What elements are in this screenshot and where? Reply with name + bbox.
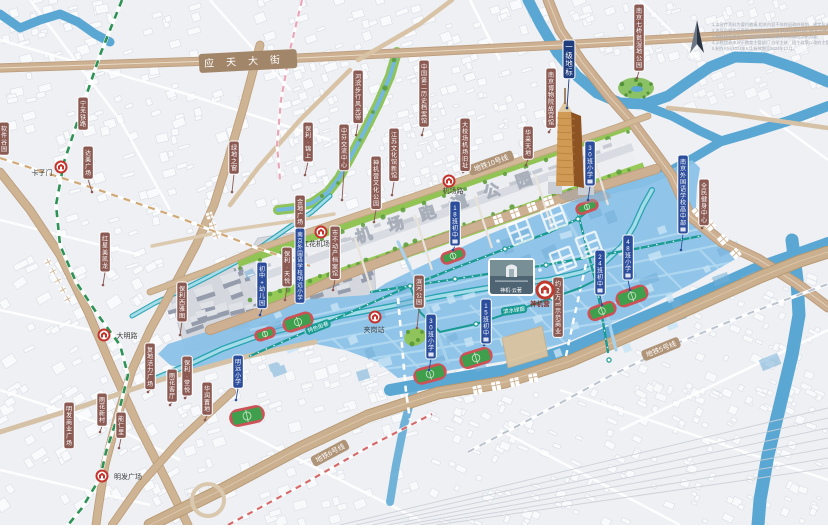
svg-text:保: 保	[305, 125, 311, 133]
svg-text:力: 力	[147, 366, 153, 374]
svg-text:馆: 馆	[391, 172, 397, 180]
svg-text:约: 约	[555, 280, 561, 288]
svg-text:地: 地	[231, 151, 237, 159]
svg-text:全: 全	[701, 182, 707, 190]
svg-text:中: 中	[483, 329, 489, 337]
svg-text:学: 学	[587, 171, 593, 179]
svg-text:3.地铁信息来源于南京地铁官网,开通时间以政府公示为准;: 3.地铁信息来源于南京地铁官网,开通时间以政府公示为准;	[712, 33, 818, 40]
svg-text:新: 新	[391, 165, 397, 173]
svg-text:市: 市	[332, 229, 338, 237]
svg-text:外: 外	[297, 243, 303, 251]
svg-text:4.学校信息来源于教育主管部门,办学主体、招生政策以政府主管: 4.学校信息来源于教育主管部门,办学主体、招生政策以政府主管部门规定为准;	[712, 39, 828, 46]
svg-text:花: 花	[99, 403, 105, 411]
svg-text:芜: 芜	[80, 107, 86, 115]
svg-text:机: 机	[462, 141, 468, 149]
svg-text:化: 化	[391, 151, 397, 159]
svg-text:小: 小	[235, 371, 241, 379]
svg-text:件: 件	[1, 132, 7, 140]
svg-text:史: 史	[421, 97, 427, 105]
svg-text:馆: 馆	[421, 117, 427, 125]
svg-text:宁: 宁	[80, 100, 86, 108]
svg-text:中: 中	[701, 209, 707, 217]
svg-text:铁: 铁	[80, 113, 86, 121]
svg-text:里: 里	[118, 429, 124, 436]
svg-text:小: 小	[625, 258, 631, 266]
svg-text:标: 标	[565, 66, 573, 76]
svg-text:园: 园	[373, 201, 379, 208]
svg-text:芬: 芬	[341, 134, 347, 142]
svg-text:初: 初	[452, 224, 458, 232]
svg-text:小: 小	[587, 164, 593, 172]
svg-text:湿: 湿	[636, 41, 642, 49]
svg-text:广: 广	[297, 211, 303, 219]
svg-text:利: 利	[184, 366, 190, 374]
svg-text:河: 河	[416, 285, 422, 293]
svg-text:国: 国	[297, 250, 303, 257]
svg-text:苏: 苏	[391, 138, 397, 146]
svg-text:交: 交	[341, 140, 347, 148]
svg-text:博: 博	[548, 84, 554, 92]
svg-text:保: 保	[284, 250, 290, 258]
svg-text:地: 地	[297, 205, 303, 213]
svg-text:小: 小	[297, 287, 303, 295]
svg-text:班: 班	[428, 330, 434, 338]
svg-text:美: 美	[102, 248, 108, 256]
svg-text:业: 业	[66, 425, 72, 433]
svg-text:1.本宣传资料为要约邀请,相关内容不排除因政府规划、规定及出: 1.本宣传资料为要约邀请,相关内容不排除因政府规划、规定及出卖人未能控制的原因而…	[712, 21, 828, 28]
svg-text:场: 场	[85, 169, 91, 177]
svg-text:校: 校	[462, 128, 468, 136]
svg-text:心: 心	[701, 217, 707, 224]
svg-text:瓮: 瓮	[636, 34, 642, 42]
svg-text:采: 采	[525, 136, 531, 144]
svg-text:学: 学	[297, 294, 303, 302]
svg-text:神机·云著: 神机·云著	[500, 287, 522, 294]
svg-text:花: 花	[169, 379, 175, 387]
svg-text:班: 班	[625, 251, 631, 259]
svg-text:场: 场	[66, 439, 72, 447]
svg-text:仁: 仁	[118, 422, 124, 430]
svg-text:润: 润	[204, 392, 210, 400]
svg-text:学: 学	[235, 378, 241, 386]
svg-text:凯: 凯	[102, 255, 108, 263]
svg-text:华: 华	[525, 129, 531, 137]
svg-text:园: 园	[416, 299, 422, 306]
svg-text:明: 明	[297, 276, 303, 283]
svg-text:产: 产	[332, 249, 338, 257]
svg-text:软: 软	[1, 125, 7, 133]
svg-text:上: 上	[305, 152, 311, 160]
svg-text:桥: 桥	[636, 27, 642, 35]
svg-text:语: 语	[297, 256, 303, 264]
svg-text:案: 案	[421, 110, 427, 118]
svg-text:新: 新	[99, 409, 105, 417]
svg-text:堂: 堂	[184, 379, 190, 387]
svg-text:院: 院	[548, 98, 554, 106]
svg-text:利: 利	[284, 257, 290, 265]
svg-text:神: 神	[373, 159, 379, 167]
svg-text:5.制作时间2024年6月,有效期至2024年12月。: 5.制作时间2024年6月,有效期至2024年12月。	[712, 45, 797, 52]
svg-text:保: 保	[179, 285, 185, 293]
svg-text:之: 之	[231, 157, 237, 165]
svg-text:馆: 馆	[548, 118, 554, 126]
svg-text:京: 京	[680, 165, 686, 173]
svg-text:班: 班	[452, 217, 458, 225]
svg-text:南: 南	[680, 158, 686, 166]
svg-text:京: 京	[548, 78, 554, 86]
svg-text:滨: 滨	[416, 278, 422, 286]
svg-text:中: 中	[680, 212, 686, 220]
svg-text:机场路: 机场路	[443, 186, 464, 195]
svg-text:夹岗站: 夹岗站	[364, 325, 385, 334]
svg-text:幼: 幼	[259, 285, 265, 293]
svg-text:中: 中	[452, 231, 458, 239]
svg-text:京: 京	[636, 14, 642, 22]
svg-text:范: 范	[555, 314, 561, 322]
svg-text:流: 流	[341, 147, 347, 155]
svg-text:光: 光	[355, 107, 361, 115]
svg-text:班: 班	[597, 266, 603, 274]
svg-text:达: 达	[85, 149, 91, 157]
svg-text:滨: 滨	[355, 80, 361, 88]
svg-text:机: 机	[373, 166, 379, 174]
svg-text:中: 中	[421, 63, 427, 71]
svg-text:案: 案	[332, 263, 338, 271]
svg-text:河: 河	[355, 73, 361, 81]
svg-text:华: 华	[204, 385, 210, 393]
svg-text:校: 校	[297, 268, 303, 276]
svg-text:中: 中	[341, 154, 347, 162]
svg-text:远: 远	[297, 281, 303, 289]
svg-text:雅: 雅	[179, 305, 185, 313]
svg-text:明发广场: 明发广场	[114, 472, 142, 481]
svg-text:图: 图	[179, 313, 185, 320]
svg-text:广: 广	[147, 373, 153, 381]
svg-text:路: 路	[80, 120, 86, 128]
svg-text:大: 大	[462, 121, 468, 129]
svg-text:学: 学	[428, 344, 434, 352]
svg-text:发: 发	[66, 412, 72, 420]
svg-text:档: 档	[332, 256, 338, 264]
svg-text:㎡: ㎡	[555, 300, 561, 308]
svg-text:神机营: 神机营	[530, 299, 550, 308]
svg-text:谷: 谷	[1, 138, 7, 146]
svg-text:锦: 锦	[305, 145, 311, 153]
svg-text:悦: 悦	[284, 277, 290, 285]
svg-text:利: 利	[179, 292, 185, 300]
svg-text:物: 物	[548, 91, 554, 99]
svg-text:初: 初	[259, 265, 265, 273]
svg-text:步: 步	[355, 86, 361, 94]
svg-text:窗: 窗	[231, 164, 237, 172]
svg-text:档: 档	[421, 104, 427, 112]
svg-text:厅: 厅	[169, 393, 175, 400]
svg-text:班: 班	[483, 315, 489, 323]
svg-text:学: 学	[625, 265, 631, 273]
svg-text:广: 广	[85, 162, 91, 170]
svg-text:文: 文	[391, 144, 397, 152]
svg-text:能: 能	[118, 415, 124, 423]
svg-text:保: 保	[184, 359, 190, 367]
svg-text:中: 中	[597, 280, 603, 288]
svg-text:园: 园	[636, 62, 642, 69]
svg-text:部: 部	[680, 219, 686, 227]
svg-text:南: 南	[548, 71, 554, 79]
svg-text:馆: 馆	[391, 158, 397, 166]
svg-text:七: 七	[636, 20, 642, 28]
svg-text:京: 京	[297, 237, 303, 245]
svg-text:场: 场	[462, 134, 468, 142]
svg-text:学: 学	[297, 262, 303, 270]
svg-text:客: 客	[169, 385, 175, 393]
svg-text:学: 学	[680, 192, 686, 200]
svg-text:场: 场	[297, 218, 303, 226]
svg-text:美: 美	[85, 156, 91, 164]
svg-text:带: 带	[355, 114, 361, 122]
svg-text:地: 地	[636, 48, 642, 56]
svg-text:绿: 绿	[231, 144, 237, 152]
svg-text:场: 场	[147, 380, 153, 388]
svg-text:广: 广	[66, 432, 72, 440]
svg-text:金: 金	[297, 198, 303, 206]
svg-text:址: 址	[462, 162, 468, 170]
svg-text:健: 健	[701, 195, 707, 203]
svg-text:小: 小	[428, 337, 434, 345]
svg-text:园: 园	[259, 300, 265, 307]
svg-text:初: 初	[597, 273, 603, 281]
svg-text:南: 南	[636, 7, 642, 15]
svg-text:利: 利	[305, 132, 311, 140]
svg-text:化: 化	[373, 186, 379, 194]
svg-text:远: 远	[235, 365, 241, 373]
svg-text:心: 心	[341, 162, 347, 169]
svg-text:文: 文	[373, 179, 379, 187]
svg-text:商: 商	[555, 321, 561, 329]
svg-text:外: 外	[680, 171, 686, 179]
svg-text:村: 村	[99, 416, 105, 424]
svg-text:营: 营	[373, 172, 379, 180]
svg-text:悦: 悦	[184, 386, 190, 394]
svg-text:校: 校	[680, 199, 686, 207]
svg-text:语: 语	[680, 185, 686, 193]
svg-text:红: 红	[102, 235, 108, 243]
svg-text:身: 身	[701, 202, 707, 210]
svg-text:中: 中	[259, 272, 265, 280]
svg-text:第: 第	[421, 76, 427, 84]
svg-text:行: 行	[355, 93, 361, 101]
svg-text:园: 园	[1, 146, 7, 153]
svg-text:大明路: 大明路	[117, 331, 138, 340]
svg-text:2.本区位图为示意图,非实际交付标准,具体以政府部门批准文件: 2.本区位图为示意图,非实际交付标准,具体以政府部门批准文件及双方买卖合同约定为…	[712, 27, 828, 34]
svg-text:场: 场	[462, 148, 468, 156]
svg-text:地: 地	[525, 149, 531, 157]
svg-text:地: 地	[147, 353, 153, 361]
svg-text:商: 商	[66, 418, 72, 426]
svg-text:班: 班	[587, 157, 593, 165]
svg-text:业: 业	[555, 327, 561, 335]
svg-text:中: 中	[341, 127, 347, 135]
svg-text:复: 复	[147, 346, 153, 354]
svg-text:南: 南	[297, 231, 303, 239]
svg-text:初: 初	[483, 322, 489, 330]
svg-text:故: 故	[548, 105, 554, 113]
svg-text:高: 高	[680, 205, 686, 213]
svg-text:活: 活	[147, 359, 153, 367]
svg-text:龙: 龙	[102, 262, 108, 270]
svg-text:宫: 宫	[548, 112, 554, 120]
svg-text:红花机场: 红花机场	[302, 239, 330, 248]
svg-text:馆: 馆	[332, 270, 338, 278]
svg-text:地: 地	[204, 405, 210, 413]
svg-text:卡子门: 卡子门	[32, 168, 53, 177]
